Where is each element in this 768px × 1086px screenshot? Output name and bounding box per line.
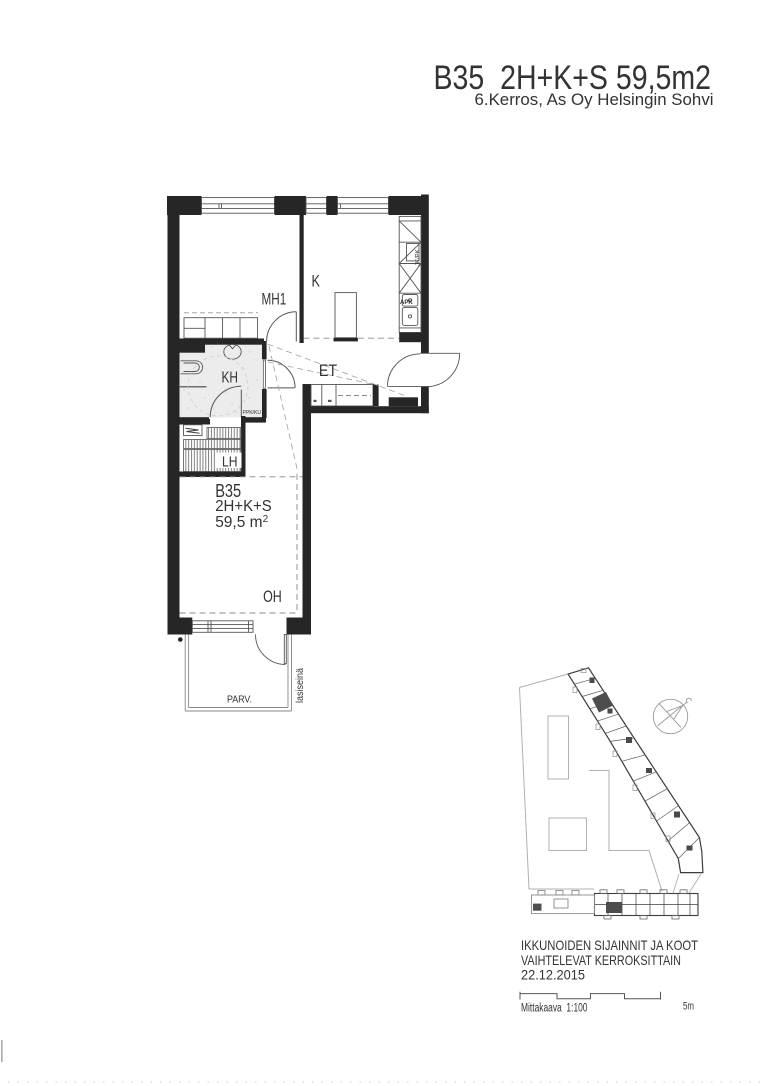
svg-text:22.12.2015: 22.12.2015: [521, 967, 585, 983]
svg-text:ET: ET: [319, 362, 337, 380]
svg-text:PPK/KU: PPK/KU: [243, 410, 262, 416]
svg-text:JK/PK: JK/PK: [416, 249, 422, 266]
svg-text:MH1: MH1: [262, 291, 287, 309]
svg-text:K: K: [312, 273, 321, 291]
svg-text:VAIHTELEVAT KERROKSITTAIN: VAIHTELEVAT KERROKSITTAIN: [521, 952, 681, 968]
svg-text:KH: KH: [222, 370, 239, 387]
svg-text:APK: APK: [400, 300, 413, 306]
svg-text:6.Kerros, As Oy Helsingin Sohv: 6.Kerros, As Oy Helsingin Sohvi: [475, 91, 714, 109]
svg-text:5m: 5m: [683, 1001, 694, 1013]
svg-text:2H+K+S: 2H+K+S: [215, 498, 272, 515]
svg-text:59,5 m2: 59,5 m2: [215, 514, 268, 531]
svg-text:LH: LH: [222, 455, 238, 471]
svg-text:IKKUNOIDEN SIJAINNIT JA KOOT: IKKUNOIDEN SIJAINNIT JA KOOT: [521, 937, 698, 953]
svg-text:PARV.: PARV.: [227, 694, 252, 706]
svg-text:OH: OH: [263, 588, 282, 606]
svg-text:lasiseinä: lasiseinä: [294, 668, 306, 703]
svg-text:Mittakaava 1:100: Mittakaava 1:100: [521, 1003, 588, 1015]
